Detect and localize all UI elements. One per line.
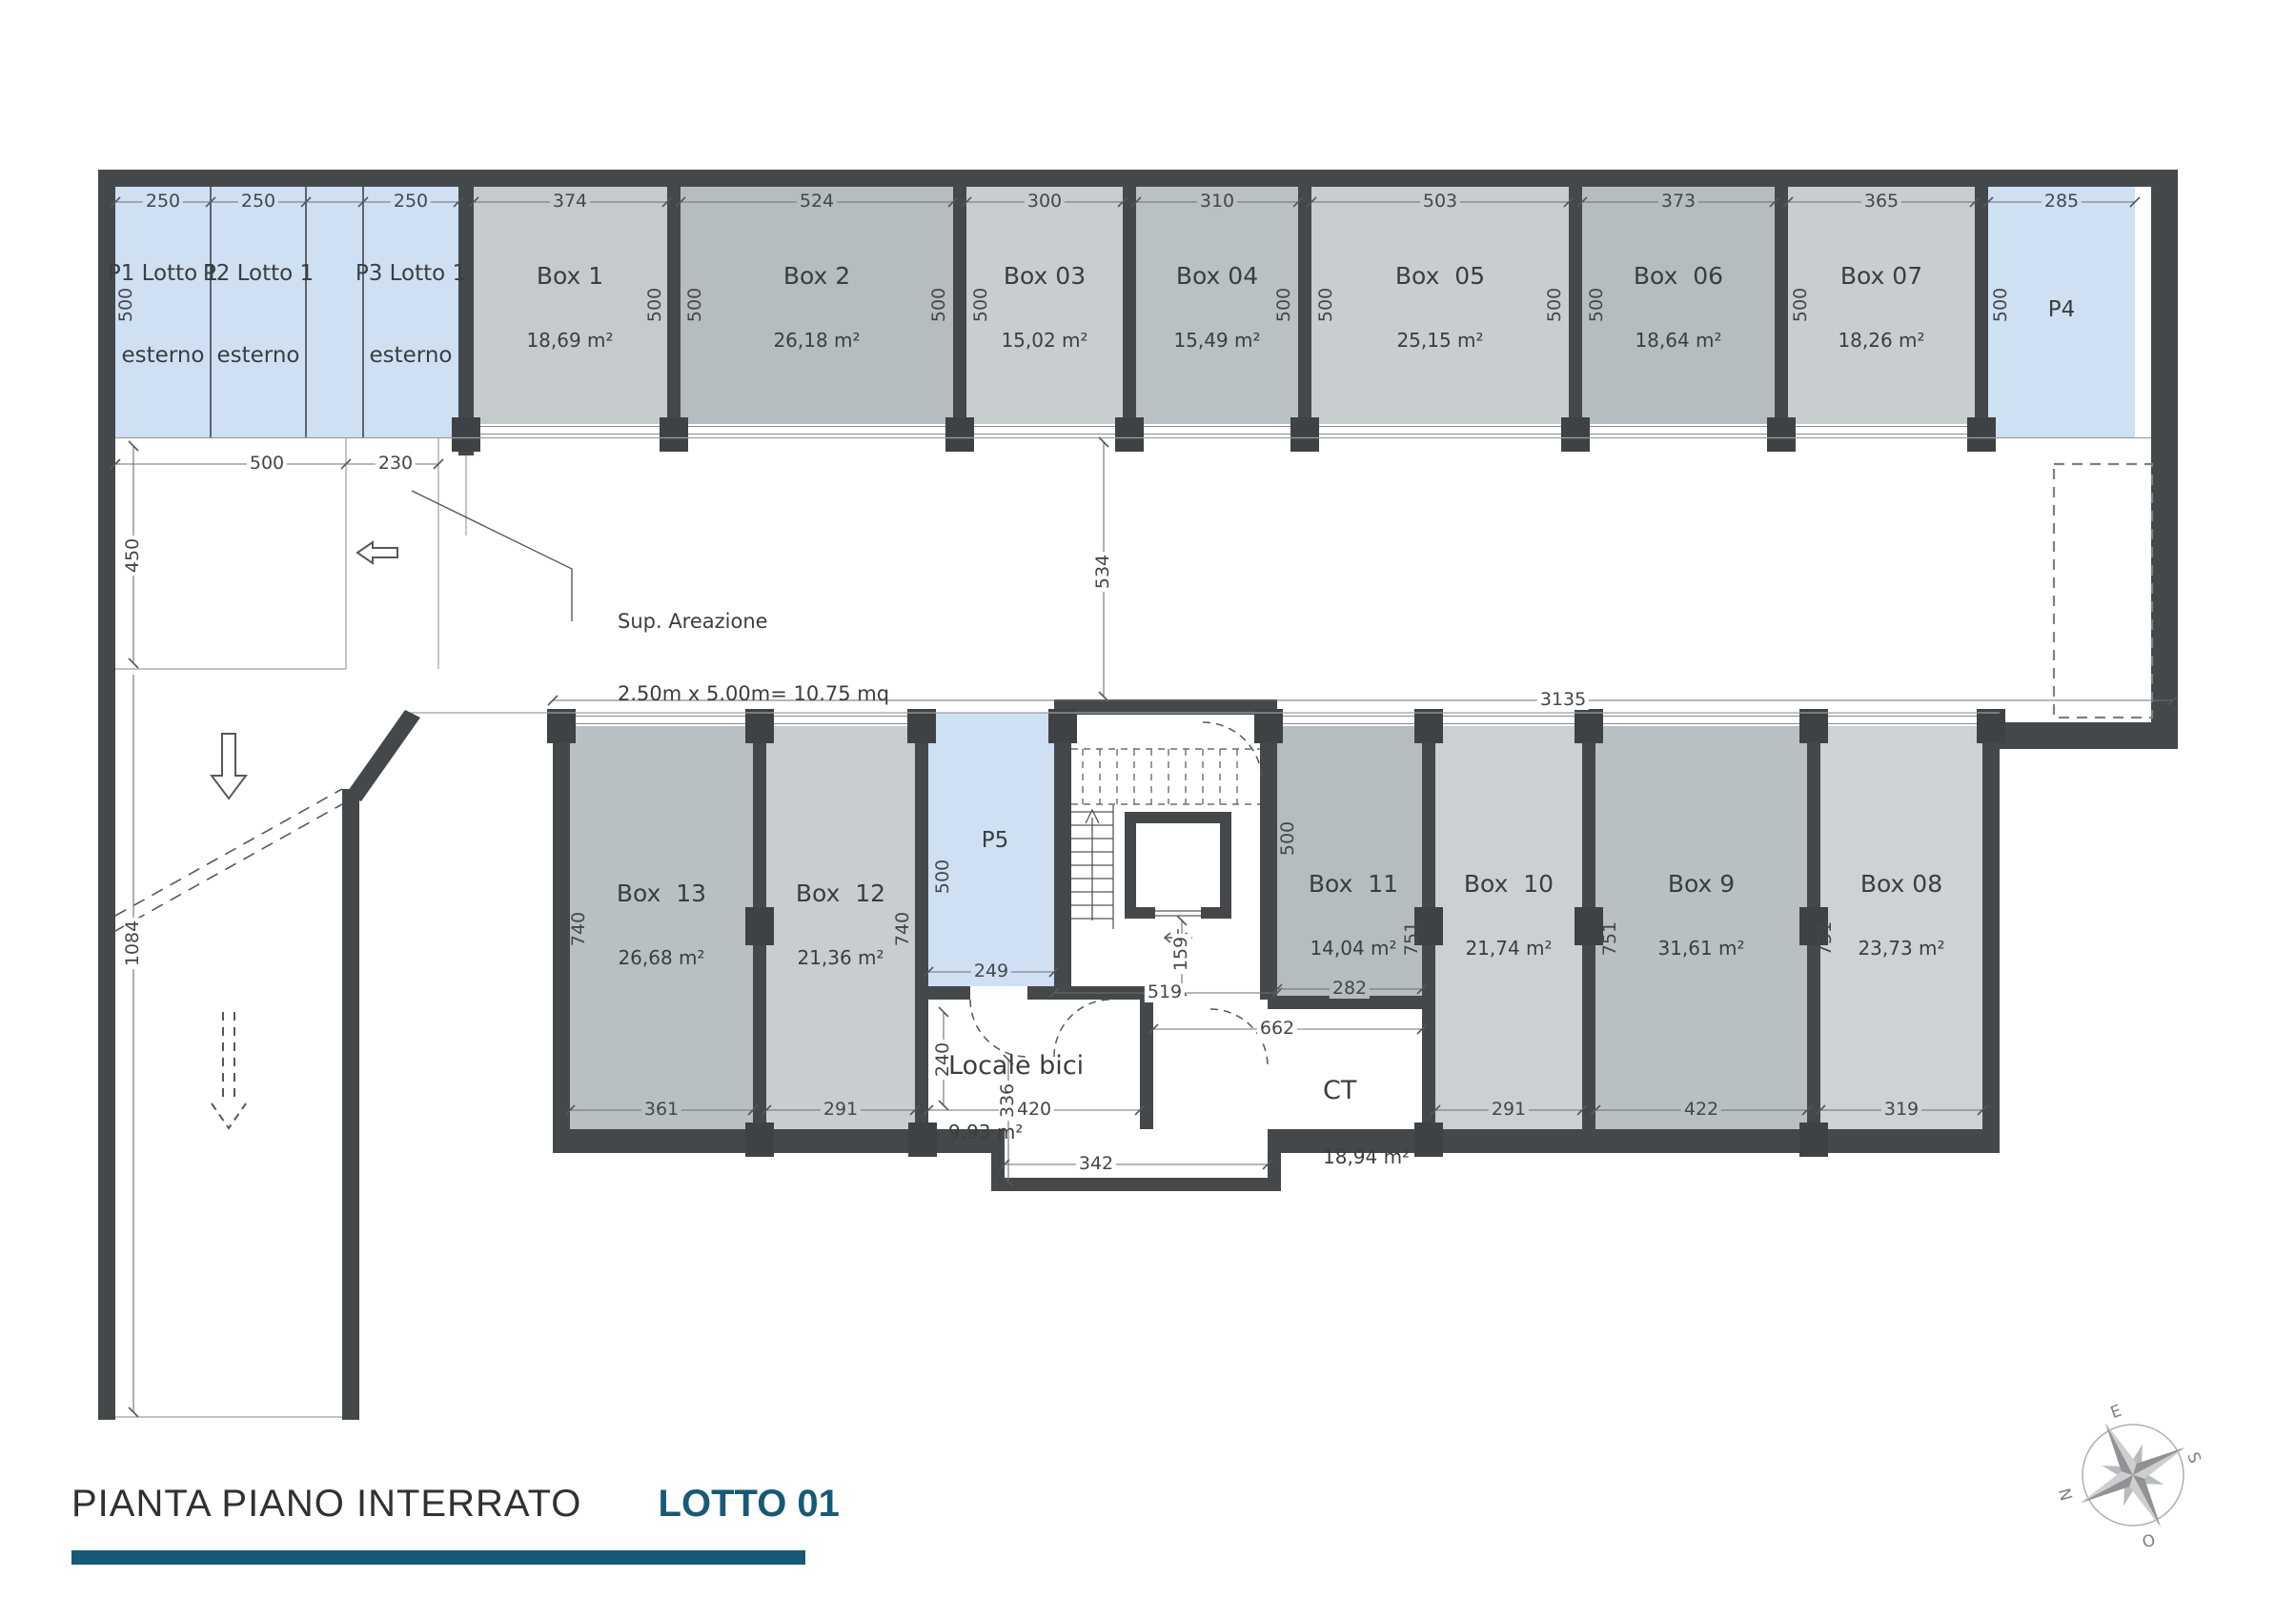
dim-ramp-450: 450: [124, 536, 143, 576]
dim-corridor-3135: 3135: [1537, 691, 1589, 710]
box-area: 26,68 m²: [617, 946, 706, 970]
stairs-upper-flight: [1071, 749, 1260, 804]
label-parking-p3: P3 Lotto 1 esterno: [356, 205, 466, 424]
dim-depth-500: 500: [972, 288, 991, 322]
ramp-dashed-arrow-icon: [212, 1012, 246, 1128]
box-name: Box 06: [1634, 261, 1723, 291]
parking-name: P4: [2047, 296, 2075, 324]
dim-box10-291: 291: [1489, 1101, 1529, 1120]
dashed-reserved-area: [2054, 464, 2152, 718]
annotation-leader: [412, 491, 572, 621]
dim-depth-500: 500: [1546, 288, 1565, 322]
ramp-left-arrow-icon: [357, 542, 397, 563]
box-name: Box 04: [1173, 261, 1260, 291]
box-name: Box 9: [1657, 869, 1744, 899]
dim-box07-width: 365: [1861, 192, 1901, 212]
dim-box08-319: 319: [1881, 1101, 1921, 1120]
box-area: 31,61 m²: [1657, 937, 1744, 961]
dim-depth-500: 500: [1992, 288, 2011, 322]
title-block: PIANTA PIANO INTERRATO LOTTO 01: [71, 1483, 840, 1526]
dim-box12-291: 291: [821, 1101, 861, 1120]
room-name: CT: [1323, 1075, 1410, 1107]
label-parking-p1: P1 Lotto 1 esterno: [108, 205, 218, 424]
room-name: Locale bici: [948, 1050, 1084, 1082]
dim-depth-500: 500: [1588, 288, 1607, 322]
dim-751: 751: [1601, 921, 1620, 956]
label-box-2: Box 2 26,18 m²: [773, 223, 860, 391]
dim-depth-500: 500: [930, 288, 949, 322]
dim-p5-249: 249: [971, 962, 1011, 981]
dim-depth-500: 500: [646, 288, 665, 322]
dim-p4-width: 285: [2042, 192, 2082, 212]
elevator-shaft: [1125, 812, 1231, 946]
parking-name: P3 Lotto 1: [356, 260, 466, 288]
label-box-12: Box 12 21,36 m²: [796, 840, 885, 1008]
box-name: Box 10: [1464, 869, 1554, 899]
label-box-10: Box 10 21,74 m²: [1464, 831, 1554, 999]
dim-ramp-230: 230: [376, 455, 416, 474]
dim-depth-500: 500: [1792, 288, 1811, 322]
box-area: 14,04 m²: [1309, 937, 1398, 961]
box-area: 25,15 m²: [1395, 329, 1485, 353]
annotation-line1: Sup. Areazione: [618, 610, 889, 634]
ramp-slope-lines: [115, 789, 342, 931]
dim-ct-662: 662: [1257, 1020, 1297, 1039]
box-name: Box 12: [796, 879, 885, 908]
room-area: 18,94 m²: [1323, 1145, 1410, 1169]
dim-751: 751: [1817, 921, 1836, 956]
dim-p5-500: 500: [934, 860, 953, 894]
compass-rose-icon: [2053, 1395, 2213, 1555]
dim-corridor-534: 534: [1094, 552, 1113, 592]
box-area: 21,36 m²: [796, 946, 885, 970]
guide-lines: [115, 438, 2151, 1418]
box-name: Box 1: [526, 261, 613, 291]
label-box-06: Box 06 18,64 m²: [1634, 223, 1723, 391]
annotation-sup-areazione: Sup. Areazione 2.50m x 5.00m= 10.75 mq: [618, 562, 889, 755]
label-box-1: Box 1 18,69 m²: [526, 223, 613, 391]
box-area: 15,49 m²: [1173, 329, 1260, 353]
label-box-13: Box 13 26,68 m²: [617, 840, 706, 1008]
dim-ramp-500: 500: [247, 455, 287, 474]
dim-751: 751: [1403, 921, 1422, 956]
dim-core-159: 159: [1172, 934, 1191, 974]
dim-box13-361: 361: [641, 1101, 681, 1120]
drawing-linework: [0, 0, 2296, 1618]
label-box-03: Box 03 15,02 m²: [1001, 223, 1087, 391]
dim-depth-500: 500: [1275, 288, 1294, 322]
box-name: Box 08: [1858, 869, 1944, 899]
dim-box05-width: 503: [1420, 192, 1460, 212]
parking-sub: esterno: [203, 342, 314, 370]
box-name: Box 05: [1395, 261, 1485, 291]
stairs-lower-flight: [1071, 805, 1113, 929]
dim-box12-740: 740: [894, 912, 913, 946]
box-area: 21,74 m²: [1464, 937, 1554, 961]
dim-ramp-1084: 1084: [124, 918, 143, 969]
box-name: Box 13: [617, 879, 706, 908]
floor-plan-sheet: 250 250 250 374 524 300 310 503 373 365 …: [0, 0, 2296, 1618]
dim-box06-width: 373: [1658, 192, 1698, 212]
dim-depth-500: 500: [686, 288, 705, 322]
label-box-07: Box 07 18,26 m²: [1838, 223, 1924, 391]
box-name: Box 03: [1001, 261, 1087, 291]
label-box-11: Box 11 14,04 m²: [1309, 831, 1398, 999]
page-title: PIANTA PIANO INTERRATO: [71, 1483, 581, 1526]
box-area: 23,73 m²: [1858, 937, 1944, 961]
label-parking-p4: P4: [2047, 241, 2075, 378]
parking-name: P1 Lotto 1: [108, 260, 218, 288]
wall-ramp-angled: [346, 710, 420, 801]
box-area: 18,64 m²: [1634, 329, 1723, 353]
parking-sub: esterno: [108, 342, 218, 370]
box-area: 18,69 m²: [526, 329, 613, 353]
annotation-line2: 2.50m x 5.00m= 10.75 mq: [618, 682, 889, 706]
dim-box2-width: 524: [797, 192, 837, 212]
dim-depth-500: 500: [1317, 288, 1336, 322]
parking-name: P5: [981, 827, 1008, 855]
label-parking-p2: P2 Lotto 1 esterno: [203, 205, 314, 424]
dim-box11-500: 500: [1279, 821, 1298, 856]
dim-box9-422: 422: [1681, 1101, 1721, 1120]
label-box-05: Box 05 25,15 m²: [1395, 223, 1485, 391]
title-underline-bar: [71, 1550, 805, 1565]
room-area: 9,93 m²: [948, 1121, 1084, 1144]
box-name: Box 11: [1309, 869, 1398, 899]
box-area: 15,02 m²: [1001, 329, 1087, 353]
dim-box03-width: 300: [1025, 192, 1065, 212]
label-box-08: Box 08 23,73 m²: [1858, 831, 1944, 999]
label-ct: CT 18,94 m²: [1323, 1037, 1410, 1207]
parking-name: P2 Lotto 1: [203, 260, 314, 288]
label-locale-bici: Locale bici 9,93 m²: [948, 1012, 1084, 1183]
dim-box13-740: 740: [570, 912, 589, 946]
dim-box1-width: 374: [550, 192, 590, 212]
box-area: 18,26 m²: [1838, 329, 1924, 353]
label-box-04: Box 04 15,49 m²: [1173, 223, 1260, 391]
lot-title: LOTTO 01: [659, 1483, 840, 1526]
box-name: Box 07: [1838, 261, 1924, 291]
dim-core-519: 519: [1145, 983, 1185, 1002]
parking-sub: esterno: [356, 342, 466, 370]
box-name: Box 2: [773, 261, 860, 291]
dim-box04-width: 310: [1197, 192, 1237, 212]
label-parking-p5: P5: [981, 772, 1008, 909]
box-area: 26,18 m²: [773, 329, 860, 353]
label-box-9: Box 9 31,61 m²: [1657, 831, 1744, 999]
ramp-down-arrow-icon: [212, 734, 246, 799]
